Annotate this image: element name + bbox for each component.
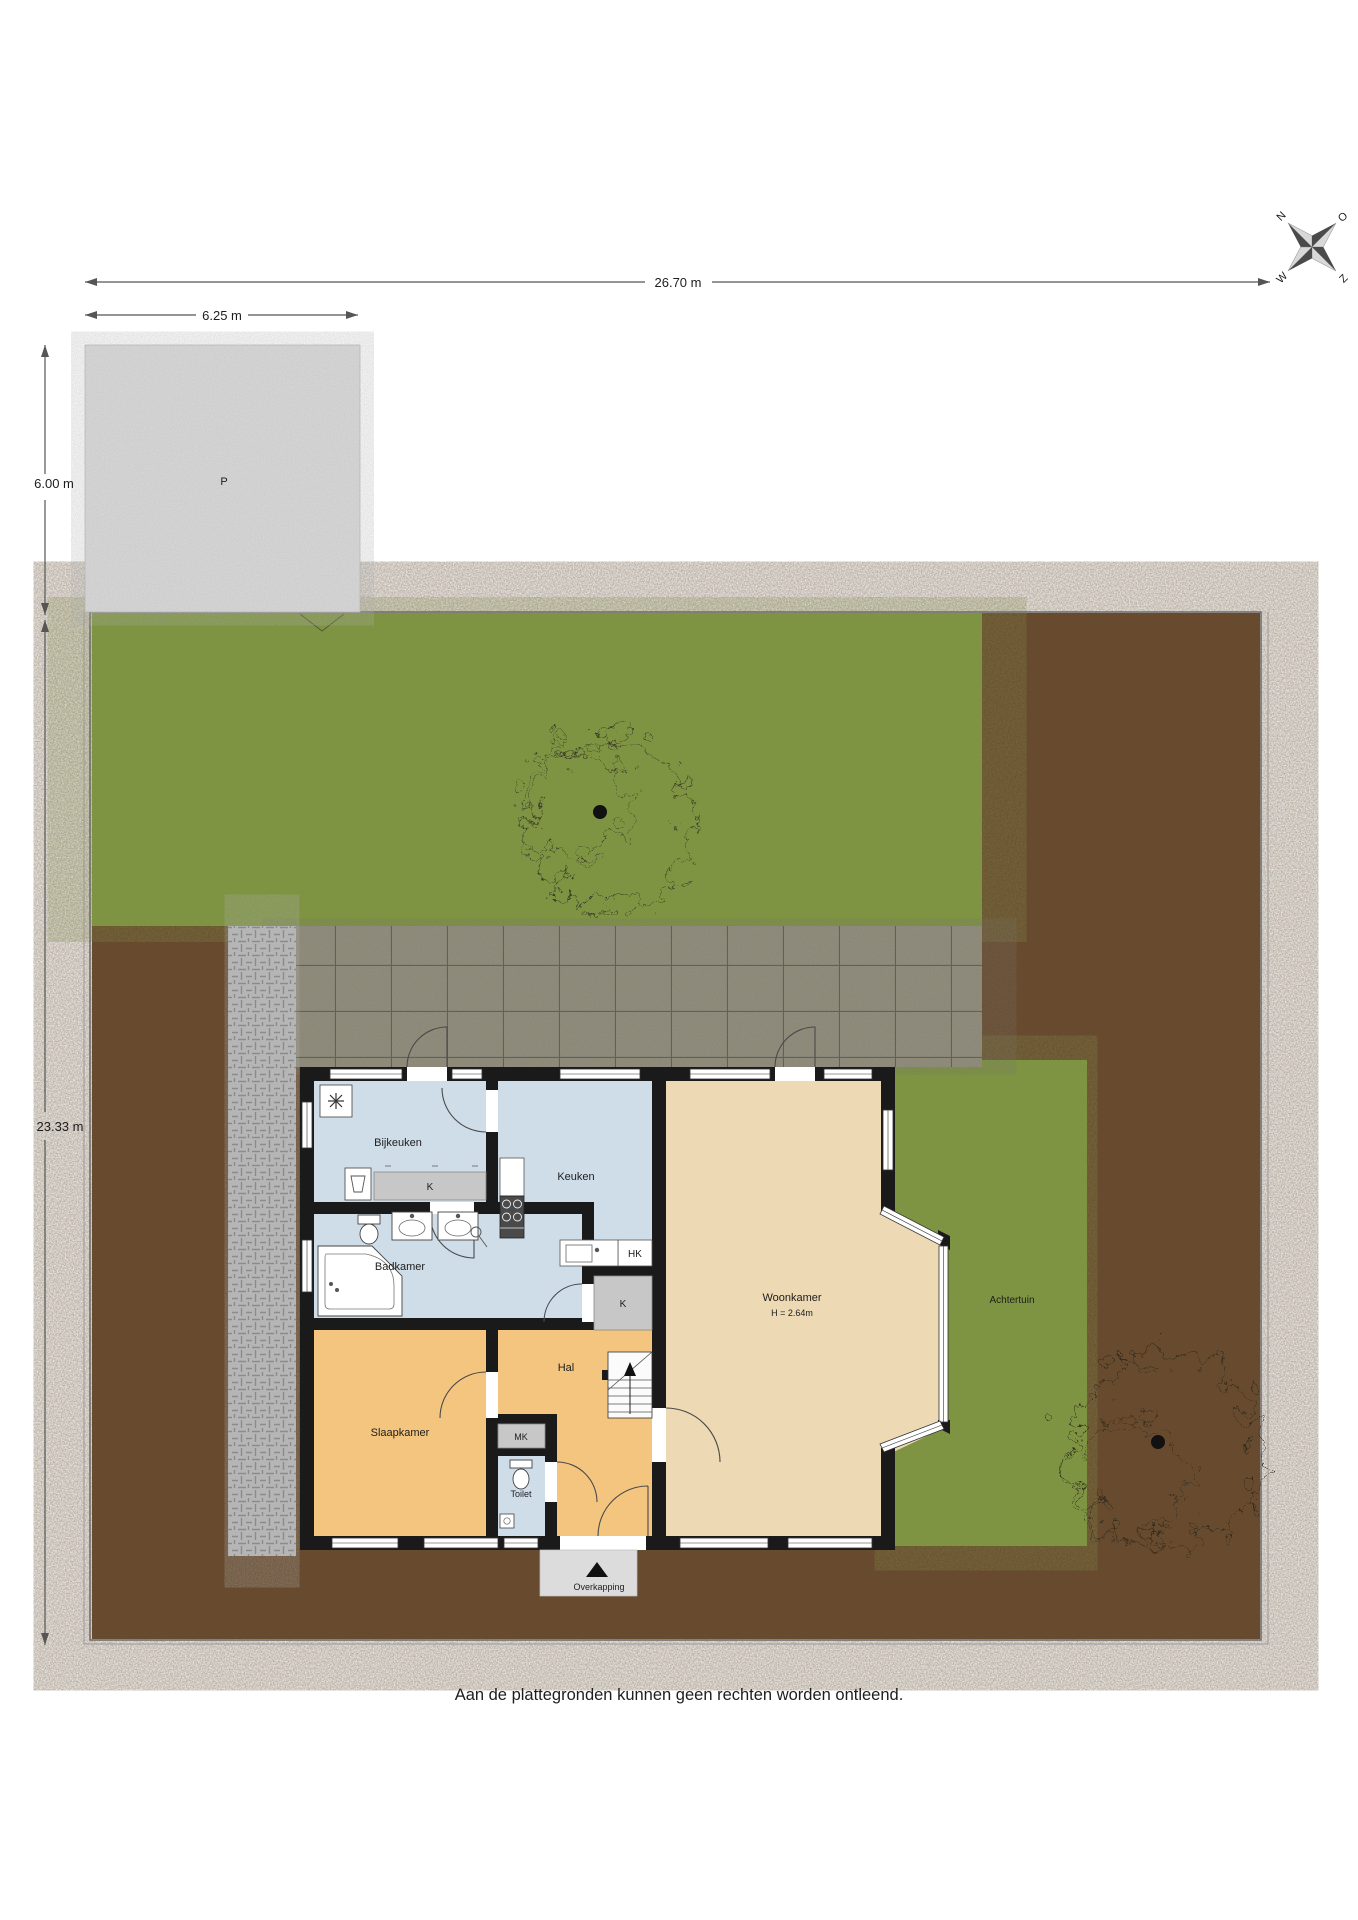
back-garden-label: Achtertuin [989,1295,1034,1306]
label-hall: Hal [558,1362,575,1374]
floorplan-page: P Achtertuin [0,0,1358,1920]
dim-parking-depth: 6.00 m [34,476,74,491]
dim-plot-width: 26.70 m [655,275,702,290]
toilet-icon [358,1215,380,1244]
sink-icon [438,1212,478,1240]
label-meter-cupboard: MK [514,1432,528,1442]
terrace-area [296,926,982,1067]
tree-trunk-icon [1151,1435,1165,1449]
lawn-area [92,613,982,926]
compass-rose: N O Z W [1243,179,1358,318]
parking-area: P [85,345,360,612]
sink-icon [392,1212,432,1240]
compass-north-label: N [1275,210,1289,224]
label-living: Woonkamer [762,1292,821,1304]
label-utility: Bijkeuken [374,1137,422,1149]
floorplan-drawing: P Achtertuin [0,0,1358,1920]
parking-label: P [220,476,227,488]
label-closet-utility: K [427,1182,434,1193]
corner-sink-icon [500,1514,514,1528]
label-toilet: Toilet [510,1489,532,1499]
washing-machine-icon [320,1085,352,1117]
house: Bijkeuken Keuken Badkamer Slaapkamer Hal… [300,1027,950,1550]
label-closet-hk: HK [628,1249,642,1260]
compass-east-label: O [1336,210,1351,225]
compass-west-label: W [1274,270,1290,286]
disclaimer-text: Aan de plattegronden kunnen geen rechten… [455,1686,904,1704]
stove-icon [500,1196,524,1238]
dim-parking-width: 6.25 m [202,308,242,323]
compass-south-label: Z [1337,272,1350,285]
label-bathroom: Badkamer [375,1261,425,1273]
label-living-height: H = 2.64m [771,1308,813,1318]
kitchen-counter [500,1158,524,1196]
canopy-label: Overkapping [573,1582,624,1592]
tree-trunk-icon [593,805,607,819]
laundry-basket-icon [345,1168,371,1200]
kitchen-sink-icon [560,1240,618,1266]
label-bedroom: Slaapkamer [371,1427,430,1439]
dim-garden-depth: 23.33 m [37,1119,84,1134]
staircase [608,1352,652,1418]
canopy: Overkapping [540,1550,637,1596]
garden-path [228,926,296,1556]
label-kitchen: Keuken [557,1171,594,1183]
label-closet-hall: K [620,1299,627,1310]
